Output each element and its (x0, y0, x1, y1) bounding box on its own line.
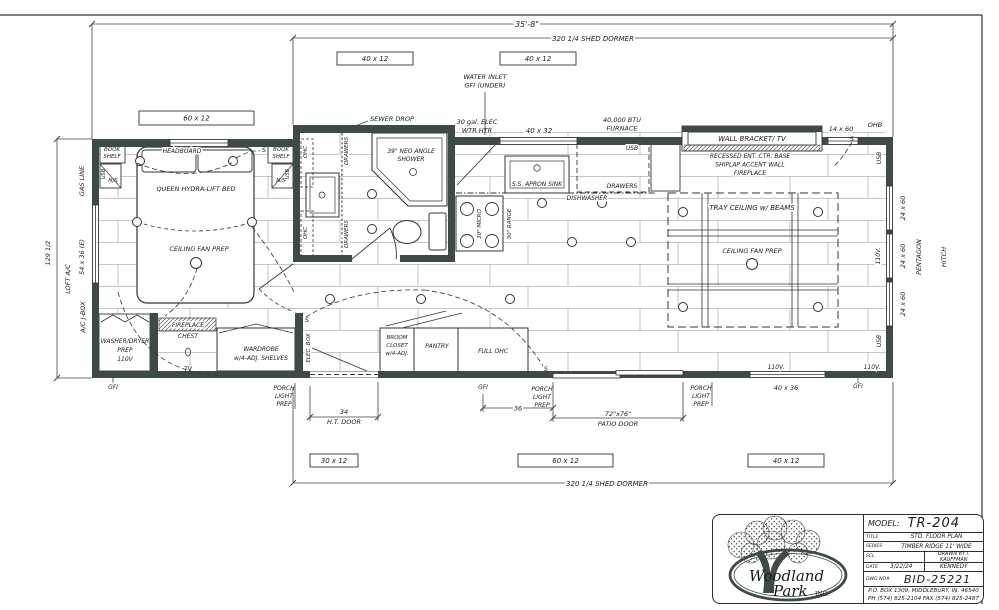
gfi-right: GFI (853, 383, 863, 390)
dim-shed-dormer-top: 320 1/4 SHED DORMER (552, 35, 634, 43)
washer-dryer-2: PREP (117, 347, 133, 354)
porch-light-right-2: LIGHT (692, 393, 711, 400)
scale-label: SCL (864, 554, 890, 559)
switch-4: S (850, 135, 854, 143)
dim-ht-door-2: H.T. DOOR (327, 418, 361, 426)
recessed-line3: FIREPLACE (734, 170, 766, 177)
window-box-60x12-top-label: 60 x 12 (183, 115, 210, 123)
switch-3: S (544, 365, 548, 373)
gfi-mid: GFI (478, 384, 488, 391)
washer-dryer-3: 110V (117, 356, 133, 363)
range: 30" RANGE (507, 208, 513, 239)
water-inlet-line1: WATER INLET (463, 73, 507, 81)
loft-ac: LOFT A/C (64, 264, 72, 294)
tray-ceiling: TRAY CEILING w/ BEAMS (709, 204, 795, 212)
toilet-bowl (393, 221, 421, 244)
porch-light-left-3: PREP (276, 401, 292, 408)
usb-furnace: USB (626, 145, 638, 152)
ac-jbox: A/C J-BOX (79, 301, 87, 334)
ceiling-fan-bedroom-circle (191, 258, 202, 269)
queen-bed: QUEEN HYDRA-LIFT BED (156, 185, 235, 193)
shower-line2: SHOWER (398, 156, 425, 163)
window-24x60-2: 24 x 60 (899, 244, 907, 269)
porch-light-right-1: PORCH (690, 385, 712, 392)
company-logo: Woodland Park INC. (713, 515, 863, 603)
patio-door-line1: 72"x76" (605, 410, 631, 418)
title-label: TITLE (864, 535, 890, 540)
hitch: HITCH (940, 247, 948, 267)
nightstand-left: N/S (108, 178, 118, 184)
series-value: TIMBER RIDGE 11' WIDE (890, 544, 983, 550)
broom-1: BROOM (387, 335, 408, 341)
apron-sink: S.S. APRON SINK (512, 181, 563, 188)
outlet-110v-bottom1: 110V. (768, 364, 785, 371)
dwg-label: DWG NO# (864, 577, 892, 582)
micro: 30" MICRO (477, 209, 483, 239)
porch-light-mid-2: LIGHT (533, 394, 552, 401)
outlet-110v-bottom2: 110V. (864, 364, 881, 371)
model-value: TR-204 (908, 516, 960, 531)
furnace-line2: FURNACE (607, 125, 639, 133)
drawers-bath-2: DRAWERS (344, 220, 350, 248)
nightstand-right: N/S (276, 178, 286, 184)
wardrobe-2: w/4-ADJ. SHELVES (234, 355, 288, 362)
pantry-cabinet (414, 328, 458, 372)
ceiling-fan-living-circle (747, 259, 758, 270)
porch-light-left-1: PORCH (273, 385, 295, 392)
tree-icon (728, 516, 820, 563)
bookshelf-left-2: SHELF (103, 154, 121, 160)
title-block-table: MODEL: TR-204 TITLE STD. FLOOR PLAN SERI… (863, 515, 983, 603)
dim-ht-door-1: 34 (340, 408, 348, 416)
dim-height-129: 129 1/2 (44, 241, 52, 266)
patio-door-panel-2 (616, 371, 683, 376)
usb-nightstand-left: USB (101, 168, 107, 179)
bookshelf-right-1: BOOK (273, 147, 289, 153)
ceiling-fan-bedroom: CEILING FAN PREP (169, 245, 228, 253)
gas-line: GAS LINE (78, 165, 86, 196)
window-box-60x12-bottom-label: 60 x 12 (552, 457, 579, 465)
washer-dryer-1: WASHER/DRYER (101, 338, 149, 345)
toilet-tank (429, 213, 446, 250)
dwg-number: BID-25221 (892, 573, 983, 586)
dim-overall-length: 35'-8" (515, 20, 539, 29)
window-40x32: 40 x 32 (526, 127, 553, 135)
ohc-bath-2: OHC (303, 227, 309, 239)
porch-light-mid-3: PREP (534, 402, 550, 409)
chest: CHEST (178, 333, 199, 340)
wall-bracket-tv: WALL BRACKET/ TV (718, 135, 787, 143)
porch-light-right-3: PREP (693, 401, 709, 408)
broom-2: CLOSET (386, 343, 408, 349)
window-40x36: 40 x 36 (774, 384, 799, 392)
window-box-30x12-bottom-label: 30 x 12 (321, 457, 348, 465)
floor-plan-sheet: 60 x 1240 x 1240 x 1230 x 1260 x 1240 x … (0, 0, 999, 610)
company-address: P.O. BOX 1309, MIDDLEBURY, IN. 46540 (864, 587, 983, 595)
elec-box: ELEC. BOX (306, 333, 312, 362)
porch-light-left-2: LIGHT (275, 393, 294, 400)
title-block: Woodland Park INC. MODEL: TR-204 TITLE S… (712, 514, 984, 604)
company-suffix: INC. (815, 591, 829, 598)
window-24x60-3: 24 x 60 (899, 292, 907, 317)
switch-2: S (305, 316, 309, 324)
ohb: OHB (868, 121, 883, 129)
pantry: PANTRY (425, 343, 450, 350)
dim-36: 36 (514, 405, 522, 413)
recessed-line2: SHIPLAP ACCENT WALL (715, 162, 784, 169)
water-inlet-line2: GFI (UNDER) (464, 82, 505, 90)
title-value: STD. FLOOR PLAN (890, 534, 983, 540)
ohc-bath-1: OHC (303, 146, 309, 158)
patio-door-line2: PATIO DOOR (598, 420, 638, 428)
dim-shed-dormer-bottom: 320 1/4 SHED DORMER (566, 480, 648, 488)
full-ohc: FULL OHC (478, 348, 509, 355)
headboard-right (198, 150, 252, 172)
ceiling-fan-living: CEILING FAN PREP (722, 247, 781, 255)
porch-light-mid-1: PORCH (531, 386, 553, 393)
model-label: MODEL: (868, 519, 900, 528)
headboard: HEADBOARD (163, 148, 202, 155)
water-heater-line2: WTR HTR (462, 127, 492, 135)
water-heater-line1: 30 gal. ELEC (457, 118, 498, 126)
window-box-40x12-top-right-label: 40 x 12 (525, 55, 552, 63)
bookshelf-left-1: BOOK (104, 147, 120, 153)
date-label: DATE (864, 565, 890, 570)
usb-right-top: USB (876, 152, 883, 164)
window-box-40x12-top-left-label: 40 x 12 (362, 55, 389, 63)
series-label: SERIES (864, 544, 890, 549)
pentagon: PENTAGON (915, 239, 923, 275)
window-24x60-1: 24 x 60 (899, 196, 907, 221)
furnace-line1: 40,000 BTU (603, 116, 641, 124)
fireplace: FIREPLACE (172, 322, 204, 329)
window-14x60: 14 x 60 (829, 125, 854, 133)
company-phone: PH (574) 825-2104 FAX (574) 825-2487 (864, 595, 983, 603)
usb-nightstand-right: USB (285, 168, 291, 179)
shower-line1: 39" NEO ANGLE (387, 148, 435, 155)
gfi-left: GFI (108, 384, 118, 391)
patio-door-panel-1 (553, 374, 620, 379)
date-value: 3/22/24 (890, 564, 924, 570)
broom-3: w/4-ADJ. (385, 351, 408, 357)
dishwasher: DISHWASHER (567, 195, 608, 202)
window-54x36: 54 x 36 (E) (78, 239, 86, 275)
drawers-bath-1: DRAWERS (344, 137, 350, 165)
window-box-40x12-bottom-label: 40 x 12 (773, 457, 800, 465)
usb-right-bottom: USB (876, 335, 883, 347)
sewer-drop: SEWER DROP (370, 115, 414, 123)
company-name-2: Park (772, 582, 808, 600)
outlet-110v-right: 110V. (875, 248, 882, 265)
bookshelf-right-2: SHELF (272, 154, 290, 160)
refrigerator (651, 141, 680, 191)
checked-by: KENNEDY (925, 564, 984, 570)
recessed-line1: RECESSED ENT. CTR. BASE (710, 153, 791, 160)
drawers-kitchen: DRAWERS (607, 183, 638, 190)
tv: TV (184, 366, 193, 373)
switch-1: S (262, 146, 266, 154)
wardrobe-1: WARDROBE (243, 346, 279, 353)
